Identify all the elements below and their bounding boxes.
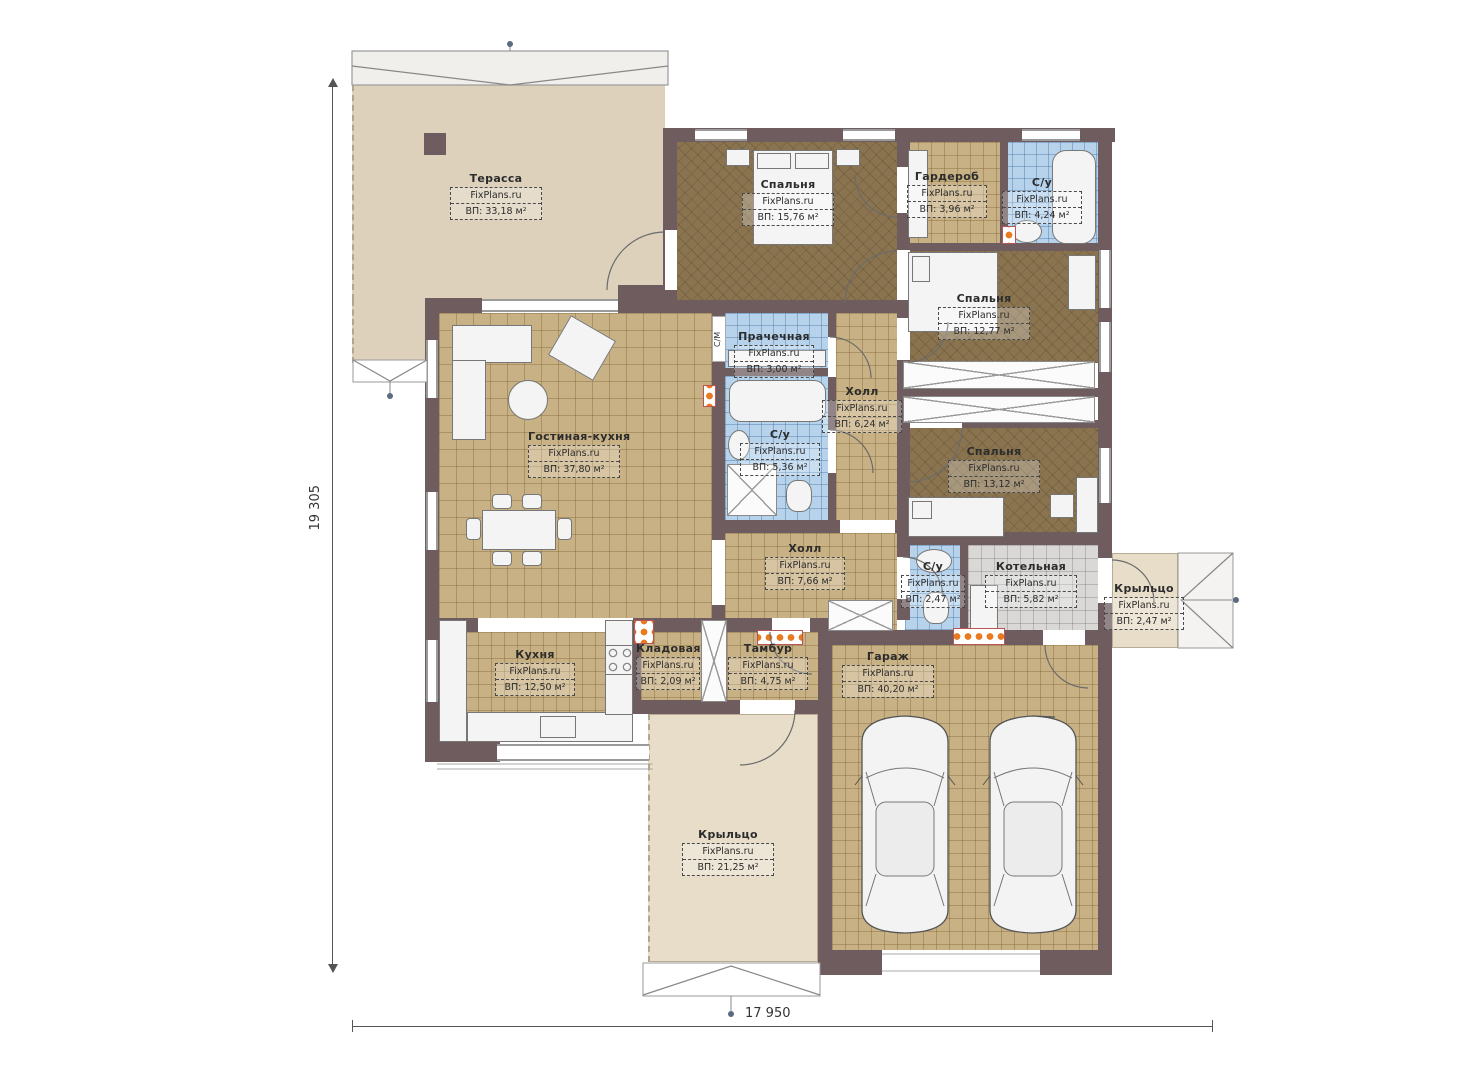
room-label-hall2: Холл FixPlans.ruВП: 7,66 м² bbox=[765, 542, 845, 590]
window bbox=[1022, 129, 1080, 141]
radiator bbox=[634, 620, 654, 644]
porch-right-roof-outline bbox=[1178, 553, 1239, 648]
kitchen-counter bbox=[439, 620, 467, 742]
room-label-kitchen: Кухня FixPlans.ruВП: 12,50 м² bbox=[495, 648, 575, 696]
floor-plan: С/М Терасса FixPlans.ruВП: 33,18 м² Спал… bbox=[0, 0, 1474, 1080]
sofa bbox=[452, 360, 486, 440]
wall bbox=[1040, 950, 1112, 975]
closet bbox=[701, 620, 727, 702]
wall bbox=[818, 632, 832, 975]
chair bbox=[466, 518, 481, 540]
terrace-floor-lower bbox=[352, 300, 425, 363]
terrace-roof-outline bbox=[352, 41, 668, 85]
chair bbox=[492, 494, 512, 509]
pillow bbox=[795, 153, 829, 169]
kitchen-sink bbox=[540, 716, 576, 738]
door-opening bbox=[740, 700, 795, 714]
toilet bbox=[786, 480, 812, 512]
window bbox=[426, 340, 438, 398]
room-label-bathroom2: С/у FixPlans.ruВП: 5,36 м² bbox=[740, 428, 820, 476]
wardrobe-cabinet bbox=[1068, 255, 1096, 310]
window bbox=[1099, 448, 1111, 503]
wall bbox=[425, 740, 500, 762]
pillow bbox=[757, 153, 791, 169]
room-label-bedroom1: Спальня FixPlans.ruВП: 15,76 м² bbox=[742, 178, 834, 226]
stove bbox=[605, 645, 633, 675]
wardrobe-cabinet bbox=[1076, 477, 1098, 533]
door-opening bbox=[665, 230, 677, 290]
chair bbox=[492, 551, 512, 566]
room-label-laundry: Прачечная FixPlans.ruВП: 3,00 м² bbox=[734, 330, 814, 378]
chair bbox=[522, 551, 542, 566]
dimension-arrow bbox=[328, 964, 338, 973]
washing-machine-label: С/М bbox=[712, 316, 726, 362]
chair bbox=[557, 518, 572, 540]
pillow bbox=[912, 501, 932, 519]
window bbox=[497, 744, 649, 761]
garage-door-opening bbox=[882, 950, 1040, 975]
radiator bbox=[953, 628, 1005, 645]
window bbox=[426, 492, 438, 550]
door-opening bbox=[1043, 630, 1085, 645]
wall bbox=[618, 285, 663, 313]
radiator bbox=[703, 385, 716, 407]
terrace-gable-outline bbox=[353, 360, 427, 399]
dimension-tick bbox=[352, 1020, 353, 1032]
closet bbox=[828, 600, 893, 631]
room-label-tambour: Тамбур FixPlans.ruВП: 4,75 м² bbox=[728, 642, 808, 690]
room-label-terrace: Терасса FixPlans.ruВП: 33,18 м² bbox=[450, 172, 542, 220]
window bbox=[695, 129, 747, 141]
door-opening bbox=[828, 430, 836, 473]
room-label-boiler: Котельная FixPlans.ruВП: 5,82 м² bbox=[985, 560, 1077, 608]
wall bbox=[663, 300, 913, 313]
window bbox=[843, 129, 895, 141]
sofa bbox=[452, 325, 532, 363]
dimension-width-label: 17 950 bbox=[745, 1006, 791, 1021]
pillow bbox=[912, 256, 930, 282]
window bbox=[426, 640, 438, 702]
room-label-hall1: Холл FixPlans.ruВП: 6,24 м² bbox=[822, 385, 902, 433]
dimension-arrow bbox=[328, 78, 338, 87]
wall bbox=[818, 950, 882, 975]
room-label-livingroom: Гостиная-кухня FixPlans.ruВП: 37,80 м² bbox=[528, 430, 620, 478]
wall bbox=[905, 243, 1098, 251]
nightstand bbox=[1050, 494, 1074, 518]
radiator bbox=[1002, 226, 1016, 244]
nightstand bbox=[836, 149, 860, 166]
chair bbox=[522, 494, 542, 509]
terrace-column bbox=[424, 133, 446, 155]
door-opening bbox=[828, 337, 836, 377]
room-label-storage: Кладовая FixPlans.ruВП: 2,09 м² bbox=[636, 642, 700, 690]
window bbox=[1099, 322, 1111, 372]
door-opening bbox=[840, 520, 895, 533]
dimension-height-label: 19 305 bbox=[308, 485, 323, 531]
dimension-line-horizontal bbox=[352, 1026, 1213, 1027]
room-label-wardrobe: Гардероб FixPlans.ruВП: 3,96 м² bbox=[907, 170, 987, 218]
roof-edge-line bbox=[437, 764, 653, 769]
dimension-line-vertical bbox=[332, 80, 333, 972]
room-label-bedroom2: Спальня FixPlans.ruВП: 12,77 м² bbox=[938, 292, 1030, 340]
porch-bottom-roof-outline bbox=[643, 963, 820, 1017]
door-opening bbox=[712, 540, 725, 605]
room-label-bathroom3: С/у FixPlans.ruВП: 2,47 м² bbox=[901, 560, 965, 608]
room-label-bathroom1: С/у FixPlans.ruВП: 4,24 м² bbox=[1002, 176, 1082, 224]
window bbox=[1099, 250, 1111, 308]
room-label-porch-right: Крыльцо FixPlans.ruВП: 2,47 м² bbox=[1104, 582, 1184, 630]
bathtub bbox=[729, 380, 826, 422]
room-label-garage: Гараж FixPlans.ruВП: 40,20 м² bbox=[842, 650, 934, 698]
nightstand bbox=[726, 149, 750, 166]
dining-table bbox=[482, 510, 556, 550]
closet bbox=[903, 361, 1095, 389]
coffee-table bbox=[508, 380, 548, 420]
closet bbox=[903, 396, 1095, 423]
room-label-porch-bottom: Крыльцо FixPlans.ruВП: 21,25 м² bbox=[682, 828, 774, 876]
dimension-tick bbox=[1212, 1020, 1213, 1032]
window bbox=[482, 299, 618, 312]
room-label-bedroom3: Спальня FixPlans.ruВП: 13,12 м² bbox=[948, 445, 1040, 493]
wall bbox=[439, 298, 482, 313]
